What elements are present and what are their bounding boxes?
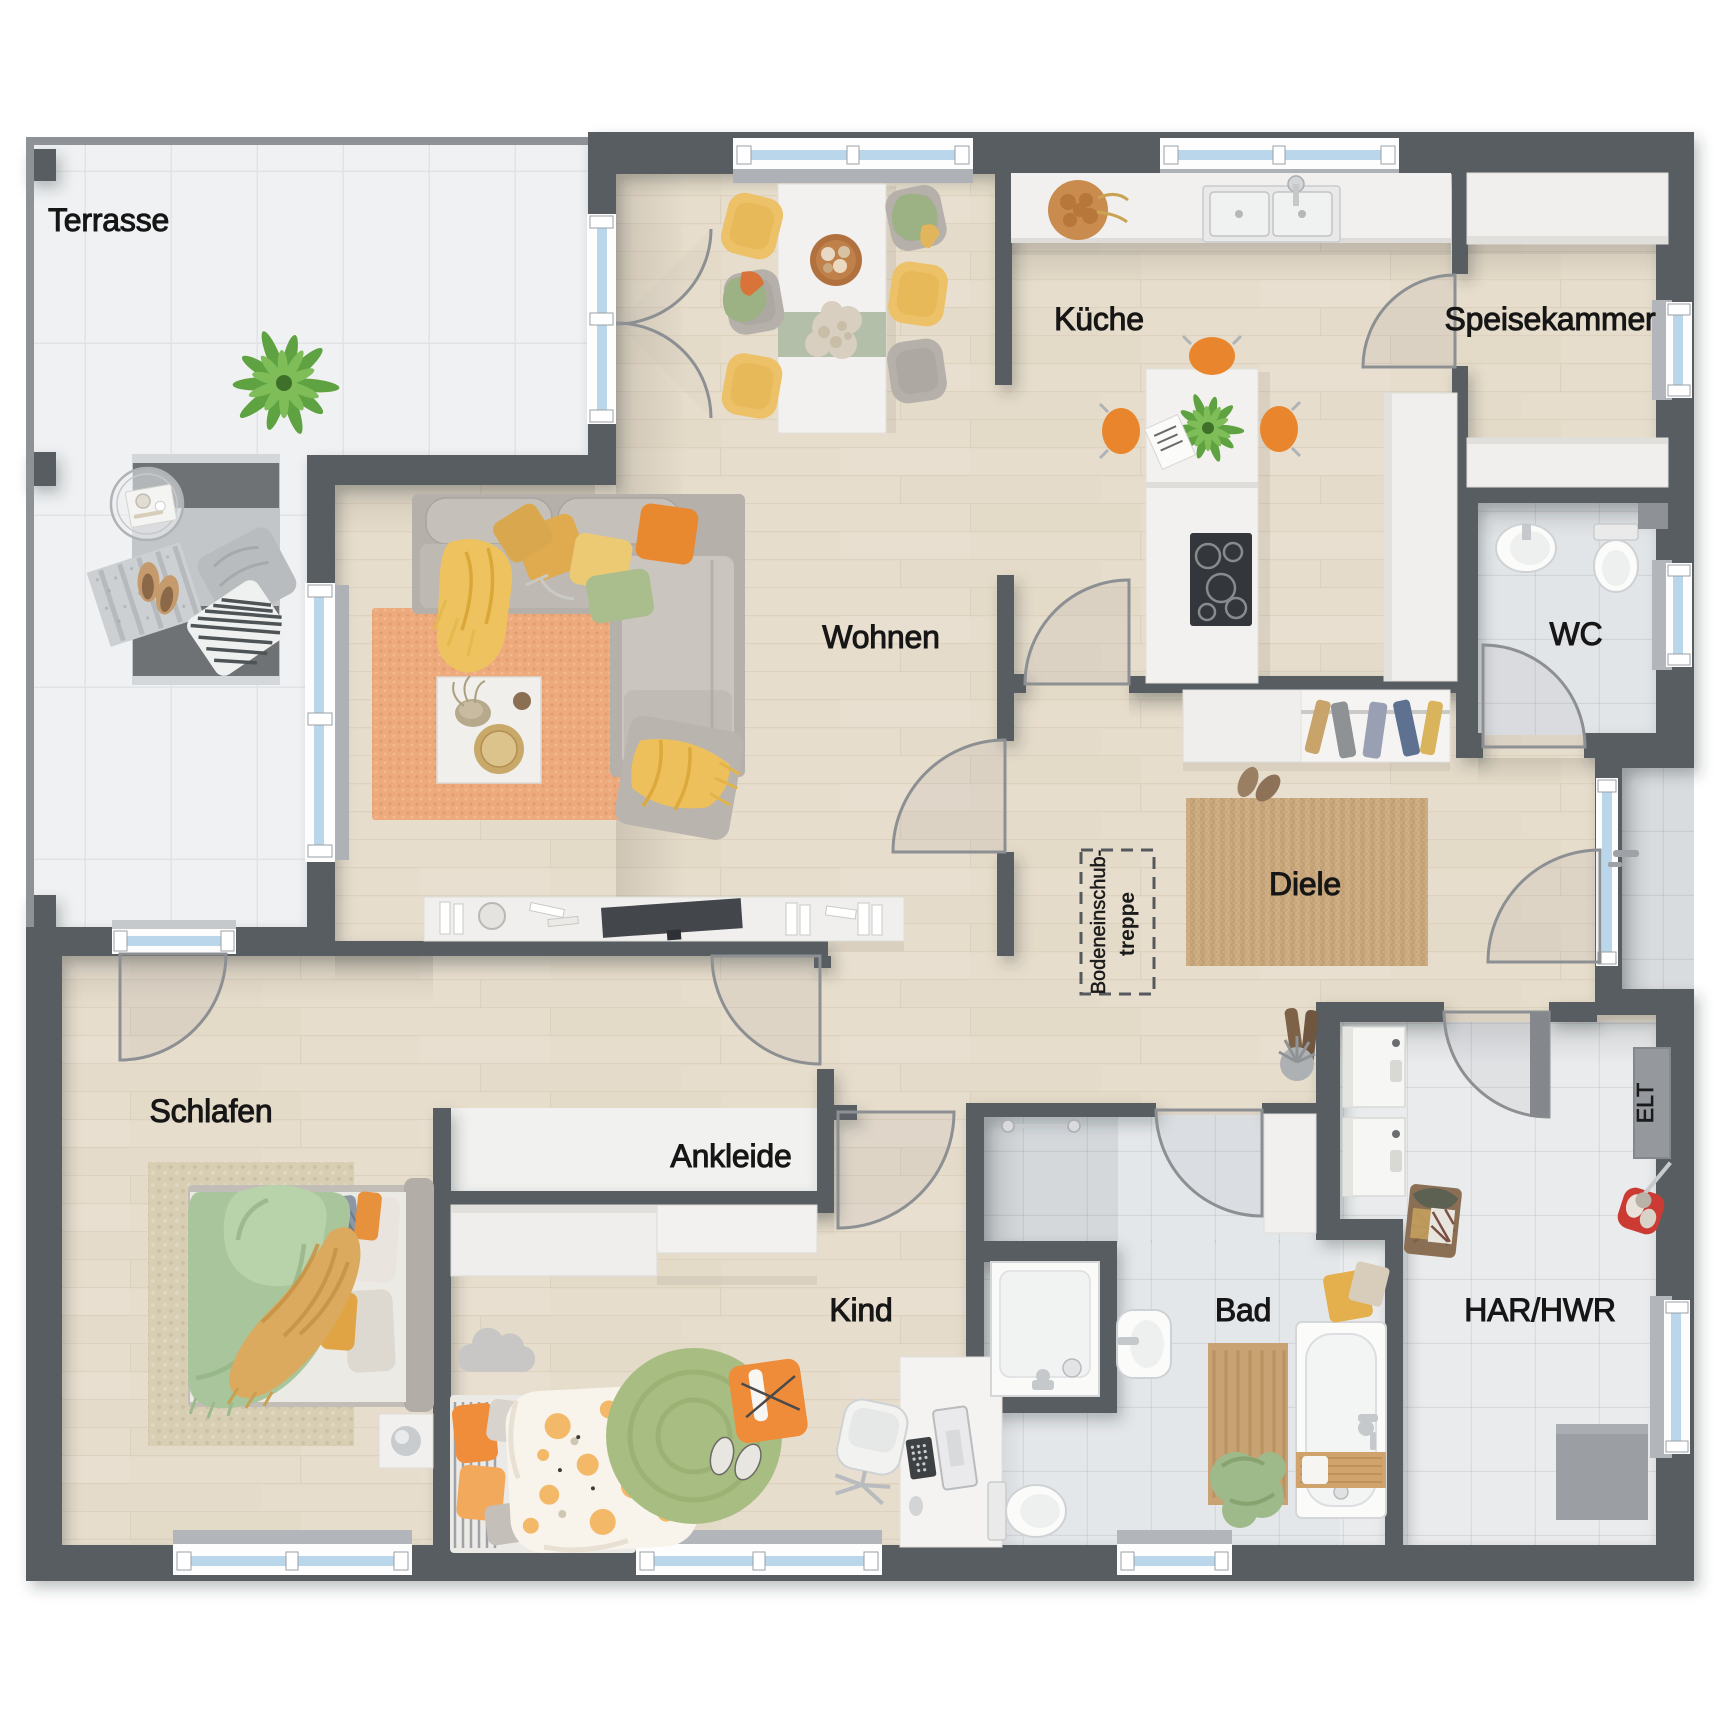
- svg-text:HAR/HWR: HAR/HWR: [1464, 1292, 1615, 1328]
- svg-text:Schlafen: Schlafen: [150, 1093, 273, 1129]
- svg-text:WC: WC: [1550, 616, 1603, 652]
- svg-text:Bodeneinschub-: Bodeneinschub-: [1088, 850, 1110, 995]
- svg-text:Diele: Diele: [1269, 866, 1341, 902]
- svg-text:Terrasse: Terrasse: [48, 202, 169, 238]
- svg-text:ELT: ELT: [1632, 1083, 1658, 1123]
- svg-text:Ankleide: Ankleide: [670, 1138, 791, 1174]
- svg-text:Küche: Küche: [1054, 301, 1144, 337]
- svg-text:Bad: Bad: [1215, 1292, 1271, 1328]
- svg-text:Speisekammer: Speisekammer: [1444, 301, 1656, 337]
- svg-text:treppe: treppe: [1116, 892, 1139, 956]
- svg-text:Wohnen: Wohnen: [822, 619, 939, 655]
- svg-text:Kind: Kind: [829, 1292, 892, 1328]
